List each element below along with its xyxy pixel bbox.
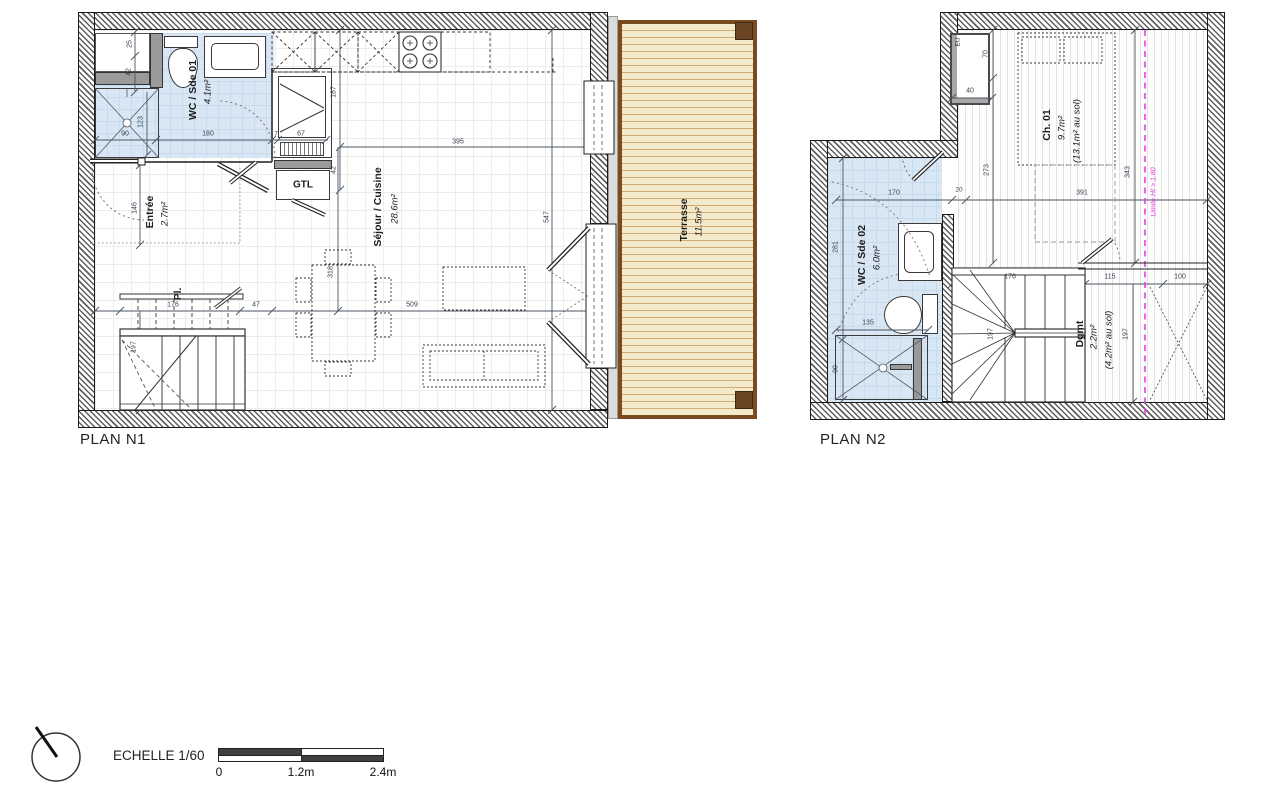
dim-label: 197	[131, 341, 138, 353]
dim-label: 123	[138, 116, 145, 128]
room-area: 2.2m²	[1089, 325, 1100, 349]
limite-label: Limite Ht > 1.80	[1151, 167, 1158, 216]
scale-tick: 1.2m	[288, 765, 315, 779]
dim-label: 115	[1104, 274, 1115, 281]
dim-label: 547	[544, 211, 551, 223]
plan2-linework	[810, 12, 1225, 420]
shower-symbol	[95, 88, 159, 158]
room-label: WC / Sde 02	[856, 225, 868, 285]
dim-label: 180	[202, 131, 214, 138]
room-label: Pl.	[172, 288, 184, 301]
cooktop	[399, 32, 441, 72]
gtl-label: GTL	[293, 180, 313, 191]
room-area: 11.5m²	[694, 208, 705, 237]
dim-label: 395	[452, 139, 464, 146]
plan1-title: PLAN N1	[80, 431, 146, 448]
dim-label: 42	[331, 166, 338, 174]
staircase	[120, 329, 245, 410]
dim-label: 90	[833, 365, 840, 373]
plan-n2: Ch. 01 9.7m² (13.1m² au sol) WC / Sde 02…	[810, 12, 1225, 420]
staircase2	[952, 268, 1085, 402]
room-area: 2.7m²	[160, 202, 171, 226]
eu-label: EU	[955, 37, 962, 46]
dim-label: 40	[966, 88, 974, 95]
dim-label: 281	[833, 241, 840, 253]
dim-label: 273	[984, 164, 991, 176]
room-label: Entrée	[144, 196, 156, 229]
dim-label: 176	[1004, 274, 1016, 281]
scale-tick: 0	[216, 765, 223, 779]
dim-label: 100	[1174, 274, 1186, 281]
dim-label: 509	[406, 302, 418, 309]
room-label: Terrasse	[678, 198, 690, 241]
room-label: Ch. 01	[1041, 109, 1053, 141]
french-door	[548, 224, 616, 368]
dim-label: 70	[983, 50, 990, 58]
dim-label: 146	[132, 202, 139, 214]
plan-n1: WC / Sde 01 4.1m² Entrée 2.7m² Pl. Séjou…	[78, 12, 760, 428]
dim-label: 170	[888, 190, 900, 197]
dim-label: 7	[274, 131, 278, 138]
dim-label: 47	[252, 302, 260, 309]
dim-label: 20	[955, 187, 962, 194]
room-area: (4.2m² au sol)	[1104, 311, 1115, 370]
fridge-door-swing	[280, 84, 324, 132]
room-area: 4.1m²	[203, 80, 214, 104]
plan1-linework	[78, 12, 760, 428]
room-label: WC / Sde 01	[187, 60, 199, 120]
dim-label: 176	[167, 302, 179, 309]
dim-label: 42	[126, 68, 133, 76]
plan2-title: PLAN N2	[820, 431, 886, 448]
dim-label: 25	[127, 40, 134, 48]
dim-label: 391	[1076, 190, 1088, 197]
low-height-zone	[1150, 287, 1207, 400]
dim-label: 90	[121, 131, 129, 138]
dim-label: 187	[331, 86, 338, 98]
room-area: 28.6m²	[390, 194, 401, 224]
kitchen-cabinets	[272, 32, 558, 72]
scale-bar-segment	[301, 755, 383, 761]
partition-lines	[95, 68, 272, 162]
dim-label: 135	[862, 320, 874, 327]
room-label: Séjour / Cuisine	[372, 167, 384, 246]
dim-label: 343	[1125, 166, 1132, 178]
scale-label: ECHELLE 1/60	[113, 748, 205, 763]
dim-label: 67	[297, 131, 305, 138]
room-label: Dgmt	[1074, 321, 1086, 348]
room-area: 9.7m²	[1057, 116, 1068, 140]
room-area: 6.0m²	[872, 246, 883, 270]
room-area: (13.1m² au sol)	[1072, 99, 1083, 163]
doors2	[902, 152, 1207, 269]
window	[584, 81, 614, 154]
shower-symbol2	[835, 335, 928, 400]
dim-label: 197	[1123, 328, 1130, 340]
doors	[90, 101, 325, 220]
dim-label: 197	[988, 328, 995, 340]
scale-tick: 2.4m	[370, 765, 397, 779]
scale-bar-segment	[219, 755, 301, 761]
scale-bar	[218, 748, 384, 762]
dim-label: 318	[328, 266, 335, 278]
